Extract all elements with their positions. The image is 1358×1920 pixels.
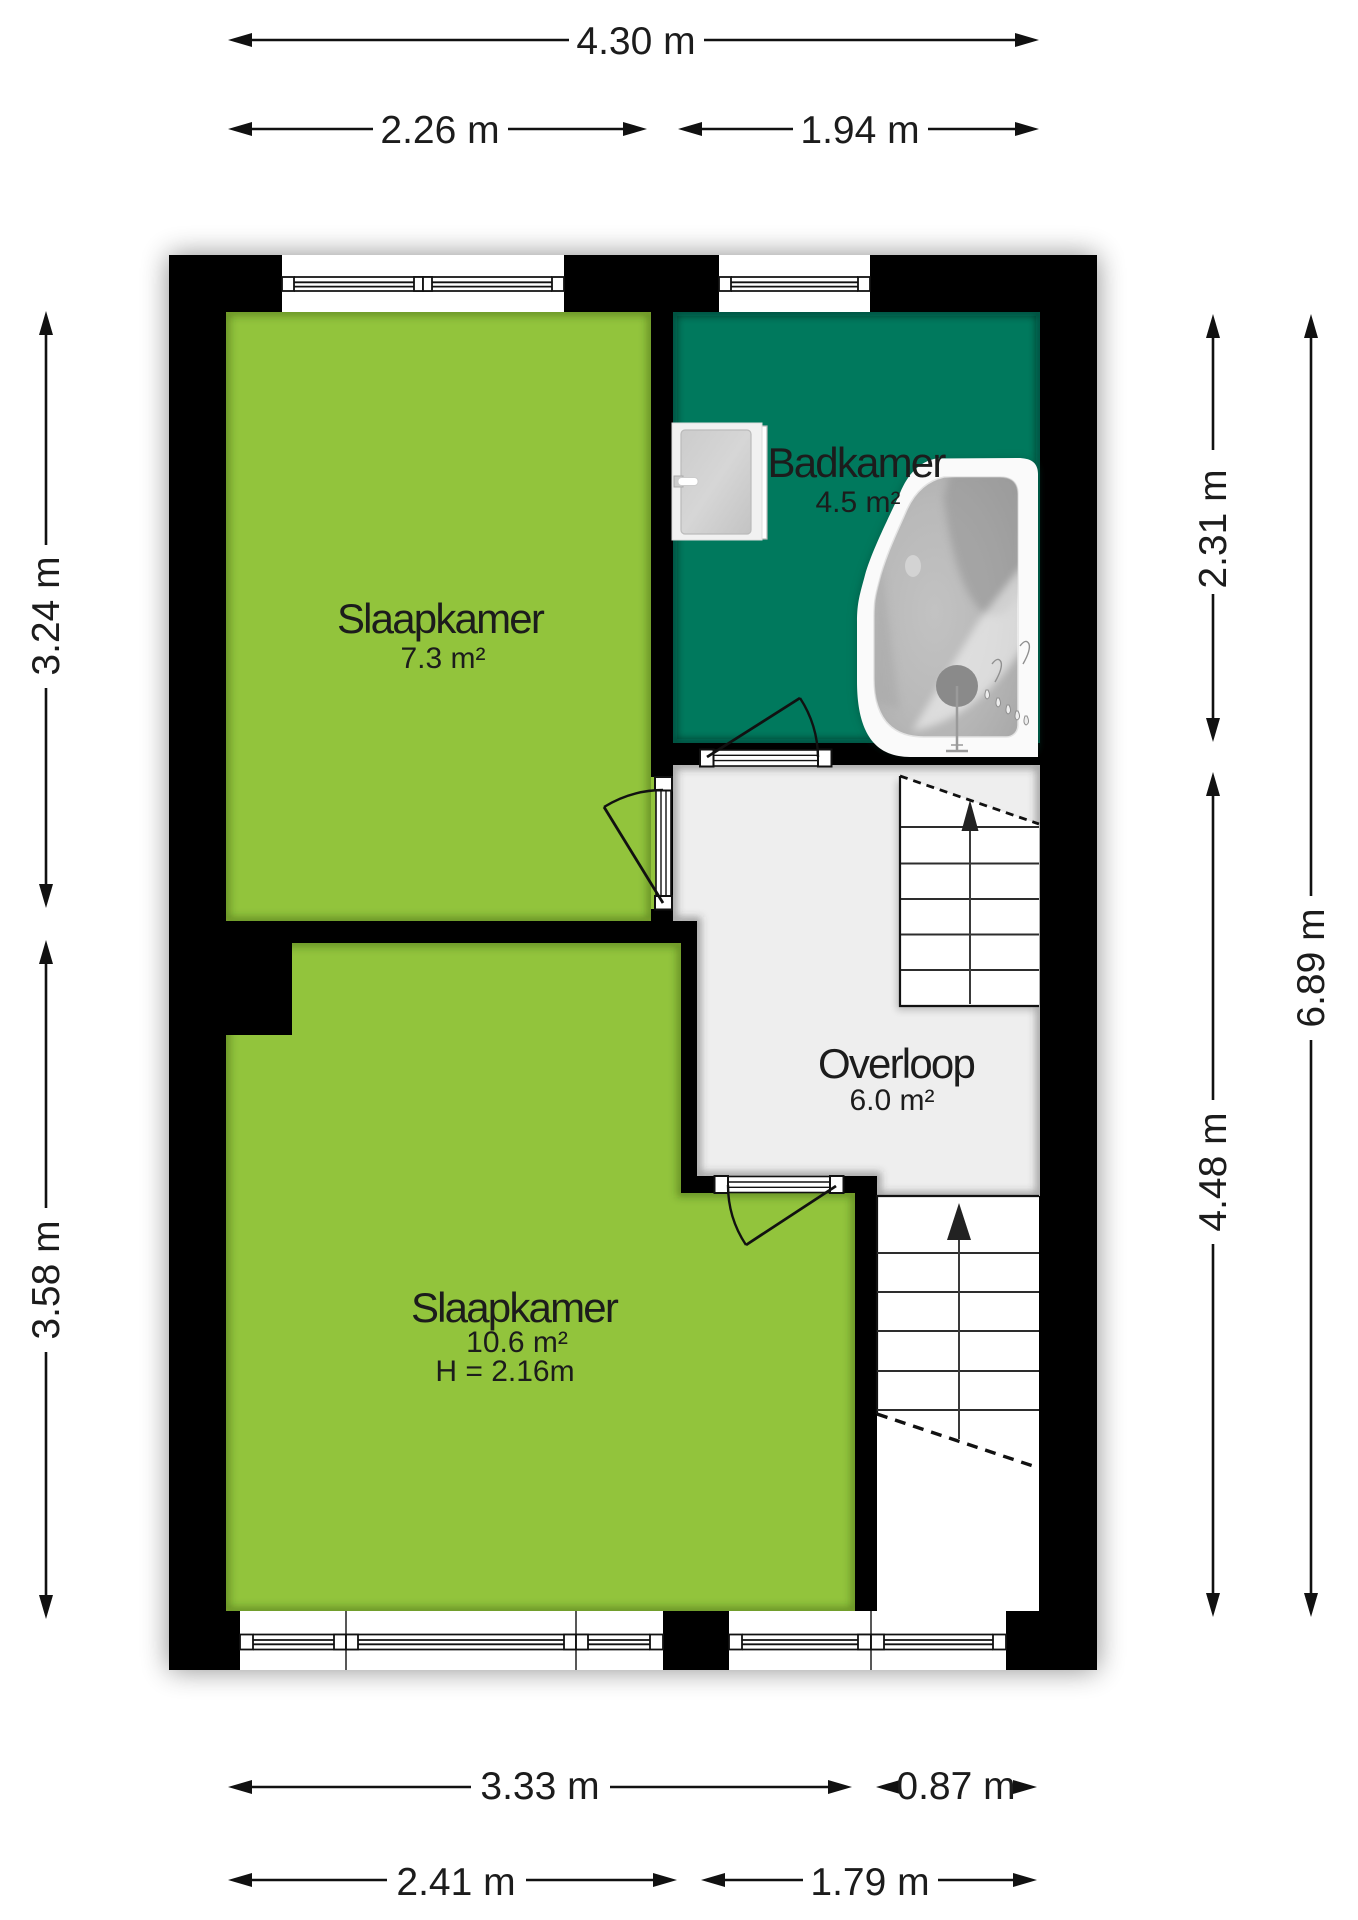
svg-text:2.26 m: 2.26 m <box>380 109 499 152</box>
svg-text:3.24 m: 3.24 m <box>25 556 68 675</box>
svg-text:3.58 m: 3.58 m <box>25 1220 68 1339</box>
svg-text:2.31 m: 2.31 m <box>1192 469 1235 588</box>
svg-text:Slaapkamer: Slaapkamer <box>337 595 545 642</box>
svg-text:0.87 m: 0.87 m <box>896 1765 1015 1808</box>
svg-text:H = 2.16m: H = 2.16m <box>435 1355 574 1388</box>
svg-text:6.89 m: 6.89 m <box>1290 908 1333 1027</box>
svg-text:4.30 m: 4.30 m <box>576 20 695 63</box>
svg-text:1.94 m: 1.94 m <box>800 109 919 152</box>
svg-text:7.3 m²: 7.3 m² <box>400 642 485 675</box>
svg-text:4.48 m: 4.48 m <box>1192 1112 1235 1231</box>
svg-text:Slaapkamer: Slaapkamer <box>411 1284 619 1331</box>
svg-text:Badkamer: Badkamer <box>767 439 946 486</box>
svg-text:6.0 m²: 6.0 m² <box>849 1084 934 1117</box>
svg-text:4.5 m²: 4.5 m² <box>815 486 900 519</box>
svg-text:3.33 m: 3.33 m <box>480 1765 599 1808</box>
svg-text:1.79 m: 1.79 m <box>810 1861 929 1904</box>
svg-text:Overloop: Overloop <box>818 1040 974 1087</box>
svg-text:2.41 m: 2.41 m <box>396 1861 515 1904</box>
